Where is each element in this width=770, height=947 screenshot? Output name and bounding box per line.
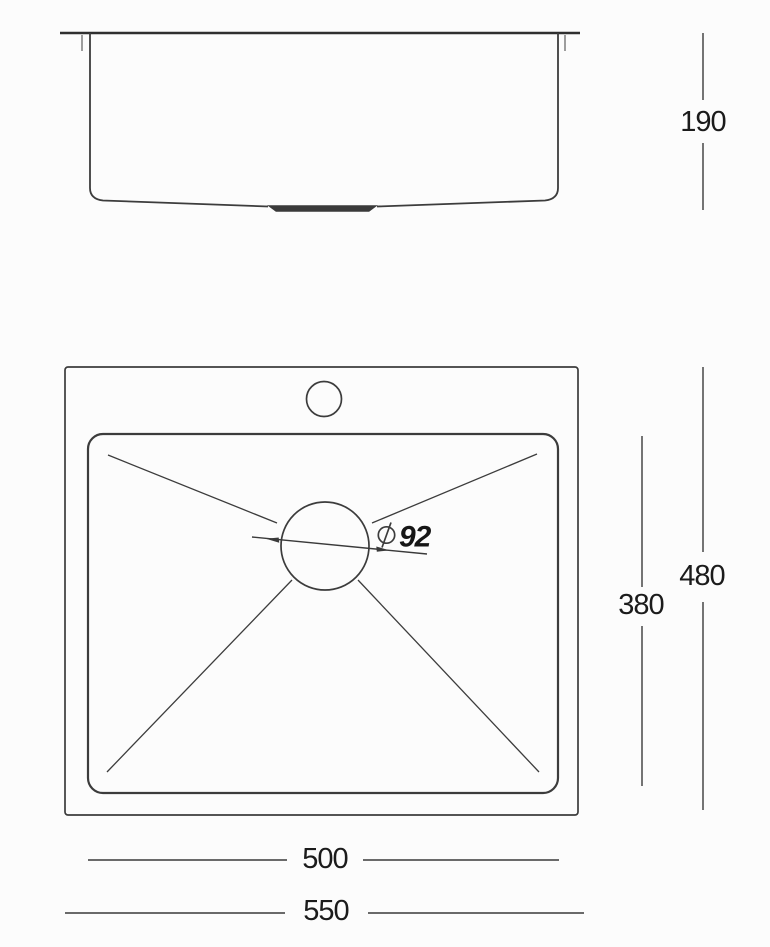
dim-bowl-height-380: 380 [618, 436, 663, 786]
dim-bowl-width-500: 500 [88, 843, 559, 875]
body-left-wall [90, 33, 268, 207]
bowl-crease-bottom-left [107, 580, 292, 772]
dim-label-190: 190 [680, 106, 725, 138]
diameter-symbol-icon [378, 523, 394, 548]
dim-label-550: 550 [303, 895, 348, 927]
bowl-crease-top-left [108, 455, 277, 523]
dim-label-380: 380 [618, 589, 663, 621]
plan-view: 92 380 480 500 550 [65, 367, 725, 927]
body-right-wall [377, 33, 558, 207]
bowl-crease-bottom-right [358, 580, 539, 772]
side-view: 190 [60, 33, 726, 212]
dim-label-500: 500 [302, 843, 347, 875]
faucet-hole [307, 382, 342, 417]
dim-overall-height-480: 480 [679, 367, 724, 810]
technical-drawing-canvas: 190 92 [0, 0, 770, 947]
bowl-rect [88, 434, 558, 793]
drain-fitting [268, 206, 377, 212]
technical-drawing-page: 190 92 [0, 0, 770, 947]
drain-hole [281, 502, 369, 590]
diameter-value-label: 92 [399, 521, 432, 554]
dim-overall-width-550: 550 [65, 895, 584, 927]
bowl-crease-top-right [372, 454, 537, 523]
dim-label-480: 480 [679, 560, 724, 592]
dim-height-190: 190 [680, 33, 725, 210]
drain-diameter-annotation: 92 [252, 521, 432, 555]
